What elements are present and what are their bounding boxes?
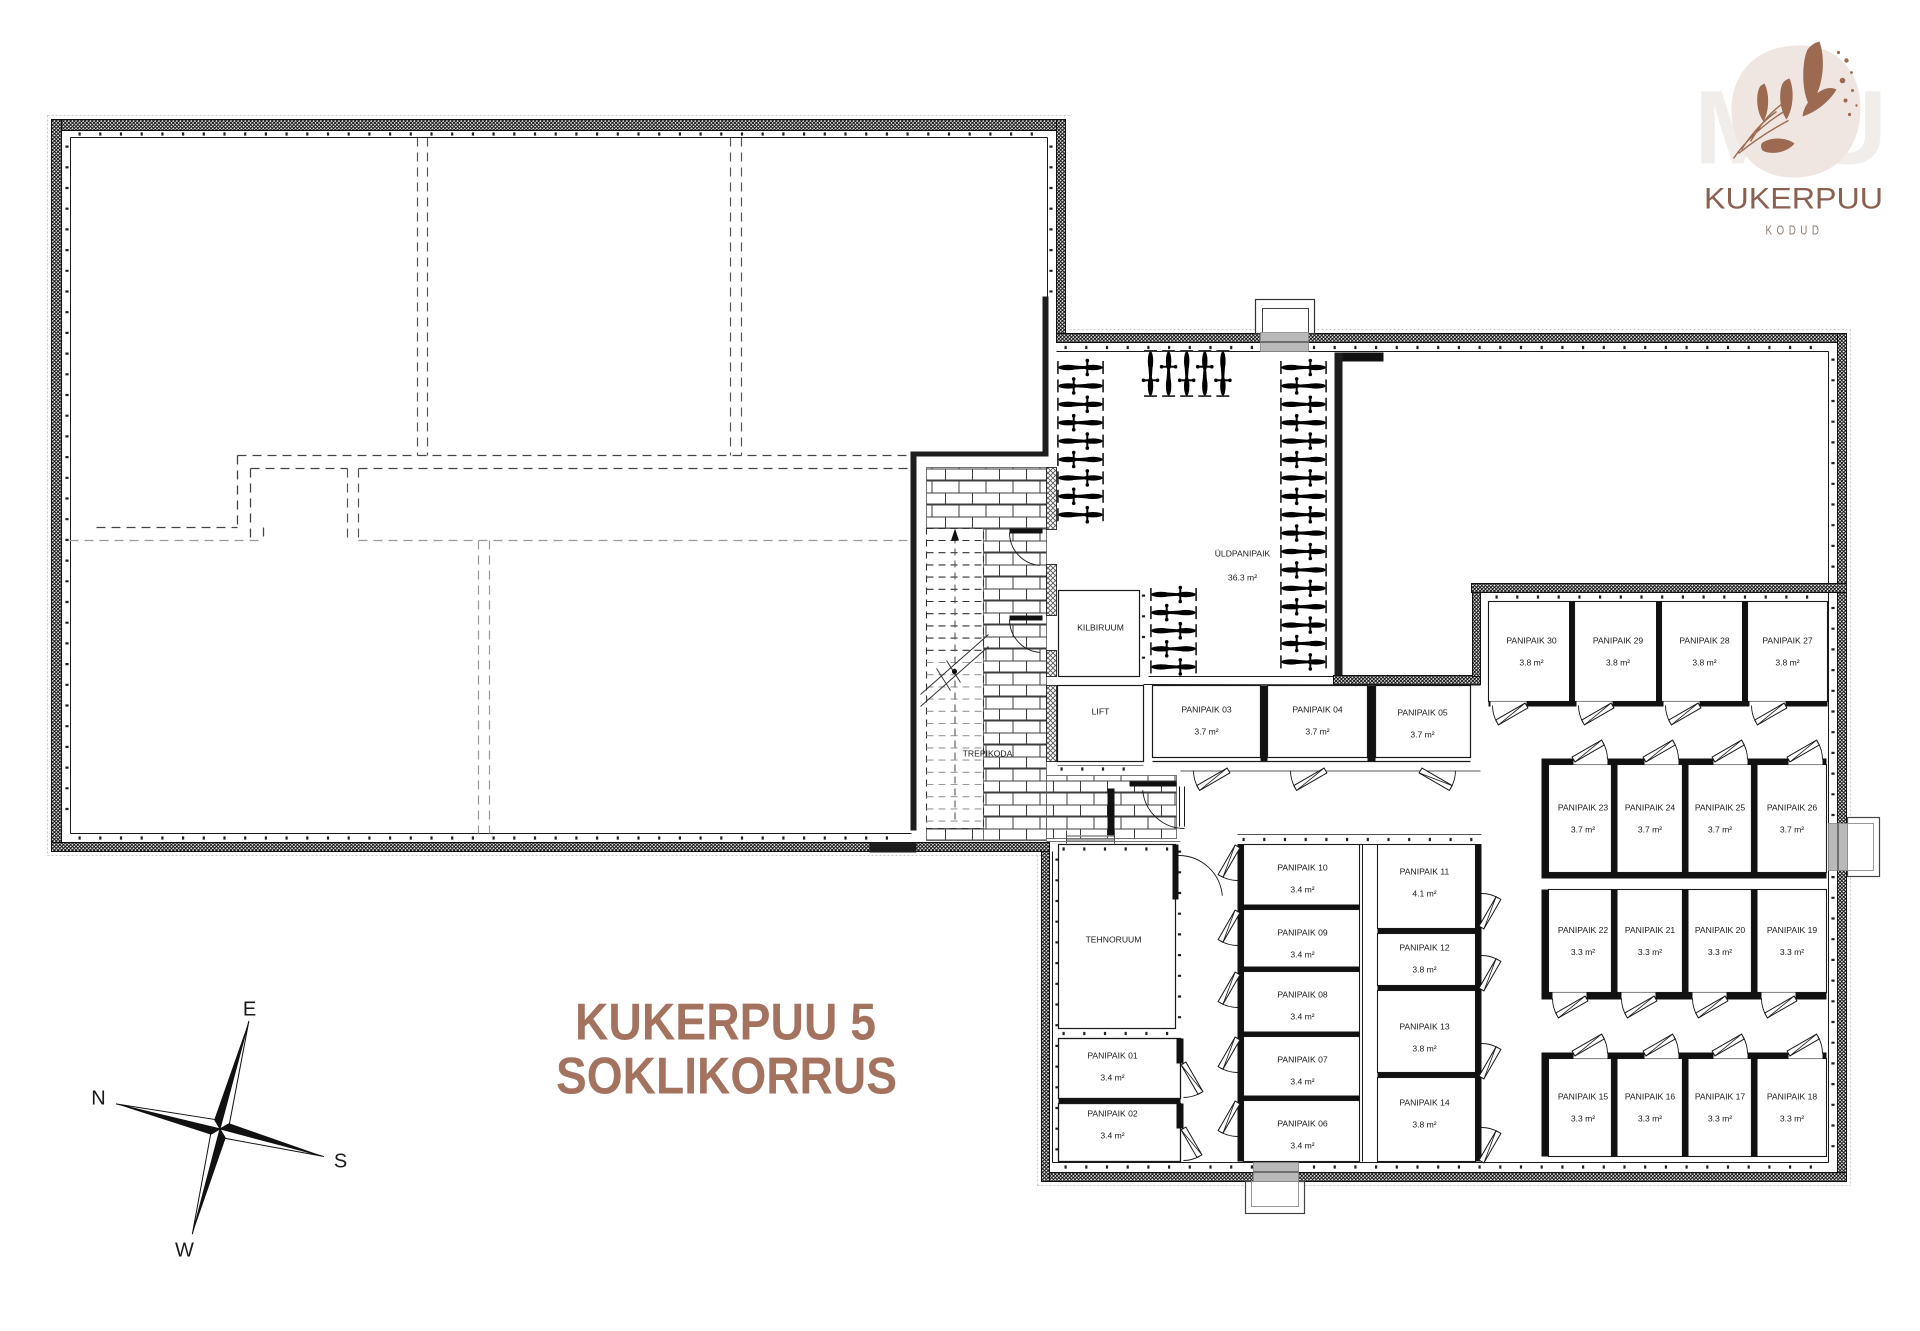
svg-text:PANIPAIK 18: PANIPAIK 18 (1767, 1092, 1818, 1102)
svg-text:PANIPAIK 08: PANIPAIK 08 (1277, 990, 1328, 1000)
svg-text:TREPIKODA: TREPIKODA (963, 749, 1013, 759)
svg-text:PANIPAIK 02: PANIPAIK 02 (1087, 1109, 1138, 1119)
svg-text:KUKERPUU: KUKERPUU (1704, 183, 1883, 216)
svg-text:3.7 m²: 3.7 m² (1571, 825, 1595, 835)
svg-text:3.4 m²: 3.4 m² (1290, 885, 1314, 895)
svg-text:3.8 m²: 3.8 m² (1606, 658, 1630, 668)
svg-text:S: S (334, 1151, 347, 1173)
svg-text:PANIPAIK 06: PANIPAIK 06 (1277, 1119, 1328, 1129)
svg-text:PANIPAIK 26: PANIPAIK 26 (1767, 803, 1818, 813)
svg-text:3.4 m²: 3.4 m² (1290, 1012, 1314, 1022)
svg-text:PANIPAIK 11: PANIPAIK 11 (1400, 867, 1450, 877)
svg-text:PANIPAIK 22: PANIPAIK 22 (1558, 925, 1609, 935)
svg-text:N: N (91, 1088, 105, 1110)
svg-text:PANIPAIK 24: PANIPAIK 24 (1625, 803, 1676, 813)
svg-text:PANIPAIK 03: PANIPAIK 03 (1181, 705, 1232, 715)
svg-text:3.3 m²: 3.3 m² (1571, 1114, 1595, 1124)
svg-text:36.3 m²: 36.3 m² (1228, 573, 1257, 583)
svg-text:3.4 m²: 3.4 m² (1290, 1077, 1314, 1087)
svg-text:3.8 m²: 3.8 m² (1412, 965, 1436, 975)
svg-text:3.3 m²: 3.3 m² (1708, 947, 1732, 957)
svg-text:PANIPAIK 30: PANIPAIK 30 (1506, 636, 1557, 646)
svg-text:PANIPAIK 28: PANIPAIK 28 (1679, 636, 1730, 646)
svg-text:SOKLIKORRUS: SOKLIKORRUS (556, 1048, 897, 1106)
svg-text:LIFT: LIFT (1092, 707, 1110, 717)
svg-text:PANIPAIK 17: PANIPAIK 17 (1695, 1092, 1746, 1102)
svg-text:PANIPAIK 25: PANIPAIK 25 (1695, 803, 1746, 813)
svg-text:PANIPAIK 15: PANIPAIK 15 (1558, 1092, 1609, 1102)
svg-text:3.3 m²: 3.3 m² (1780, 947, 1804, 957)
svg-text:W: W (175, 1240, 194, 1262)
svg-text:KUKERPUU 5: KUKERPUU 5 (575, 994, 876, 1052)
svg-text:3.7 m²: 3.7 m² (1410, 730, 1434, 740)
svg-text:3.4 m²: 3.4 m² (1100, 1131, 1124, 1141)
svg-text:3.3 m²: 3.3 m² (1638, 947, 1662, 957)
svg-text:PANIPAIK 27: PANIPAIK 27 (1762, 636, 1813, 646)
svg-text:TEHNORUUM: TEHNORUUM (1086, 935, 1142, 945)
svg-text:PANIPAIK 20: PANIPAIK 20 (1695, 925, 1746, 935)
svg-text:ÜLDPANIPAIK: ÜLDPANIPAIK (1215, 549, 1271, 559)
svg-text:3.3 m²: 3.3 m² (1571, 947, 1595, 957)
svg-text:3.8 m²: 3.8 m² (1692, 658, 1716, 668)
svg-text:3.4 m²: 3.4 m² (1290, 1141, 1314, 1151)
svg-text:3.4 m²: 3.4 m² (1290, 950, 1314, 960)
svg-text:3.7 m²: 3.7 m² (1194, 727, 1218, 737)
svg-text:3.3 m²: 3.3 m² (1708, 1114, 1732, 1124)
svg-text:3.7 m²: 3.7 m² (1780, 825, 1804, 835)
svg-text:PANIPAIK 09: PANIPAIK 09 (1277, 928, 1328, 938)
svg-text:PANIPAIK 23: PANIPAIK 23 (1558, 803, 1609, 813)
svg-text:PANIPAIK 10: PANIPAIK 10 (1277, 863, 1328, 873)
svg-text:PANIPAIK 19: PANIPAIK 19 (1767, 925, 1818, 935)
svg-text:PANIPAIK 01: PANIPAIK 01 (1087, 1051, 1138, 1061)
svg-text:3.4 m²: 3.4 m² (1100, 1073, 1124, 1083)
svg-text:3.7 m²: 3.7 m² (1305, 727, 1329, 737)
svg-text:PANIPAIK 14: PANIPAIK 14 (1399, 1098, 1450, 1108)
svg-text:PANIPAIK 13: PANIPAIK 13 (1399, 1022, 1450, 1032)
svg-text:PANIPAIK 21: PANIPAIK 21 (1625, 925, 1676, 935)
svg-text:PANIPAIK 05: PANIPAIK 05 (1397, 708, 1448, 718)
svg-text:3.7 m²: 3.7 m² (1708, 825, 1732, 835)
svg-text:3.8 m²: 3.8 m² (1519, 658, 1543, 668)
svg-text:4.1 m²: 4.1 m² (1412, 889, 1436, 899)
svg-text:E: E (243, 999, 256, 1021)
svg-text:PANIPAIK 07: PANIPAIK 07 (1277, 1055, 1328, 1065)
svg-text:KODUD: KODUD (1766, 223, 1824, 238)
svg-text:PANIPAIK 29: PANIPAIK 29 (1593, 636, 1644, 646)
svg-text:3.8 m²: 3.8 m² (1412, 1044, 1436, 1054)
svg-text:KILBIRUUM: KILBIRUUM (1077, 623, 1124, 633)
svg-text:3.8 m²: 3.8 m² (1412, 1120, 1436, 1130)
svg-text:3.7 m²: 3.7 m² (1638, 825, 1662, 835)
svg-text:3.8 m²: 3.8 m² (1775, 658, 1799, 668)
svg-text:3.3 m²: 3.3 m² (1638, 1114, 1662, 1124)
svg-text:PANIPAIK 16: PANIPAIK 16 (1625, 1092, 1676, 1102)
svg-text:3.3 m²: 3.3 m² (1780, 1114, 1804, 1124)
svg-text:PANIPAIK 12: PANIPAIK 12 (1399, 943, 1450, 953)
svg-text:PANIPAIK 04: PANIPAIK 04 (1292, 705, 1343, 715)
